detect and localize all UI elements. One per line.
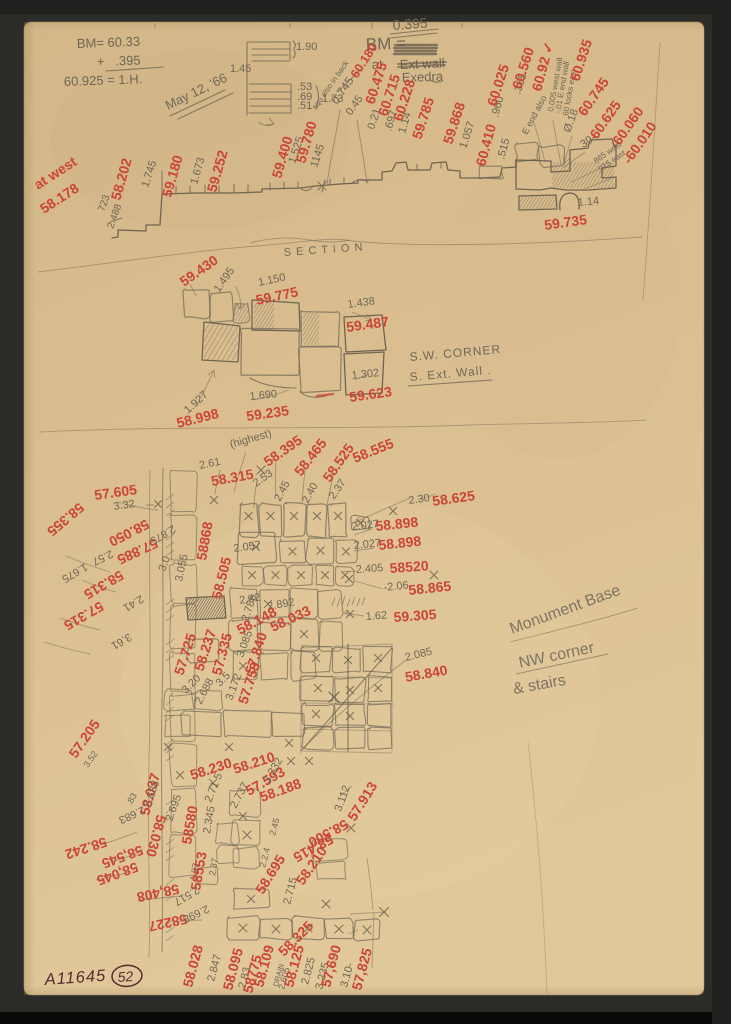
svg-text:1.14: 1.14	[577, 195, 599, 209]
svg-text:52: 52	[117, 968, 134, 985]
svg-text:1.62: 1.62	[365, 610, 387, 623]
svg-text:+ .395: + .395	[97, 52, 141, 69]
svg-text:1.90: 1.90	[296, 41, 317, 53]
svg-text:58520: 58520	[389, 557, 429, 576]
svg-text:2.405: 2.405	[355, 562, 383, 576]
svg-text:BM= 60.33: BM= 60.33	[77, 34, 141, 51]
svg-text:60.925 = 1.H.: 60.925 = 1.H.	[64, 71, 143, 89]
svg-text:59.305: 59.305	[393, 606, 437, 625]
svg-text:1.45: 1.45	[230, 63, 251, 75]
